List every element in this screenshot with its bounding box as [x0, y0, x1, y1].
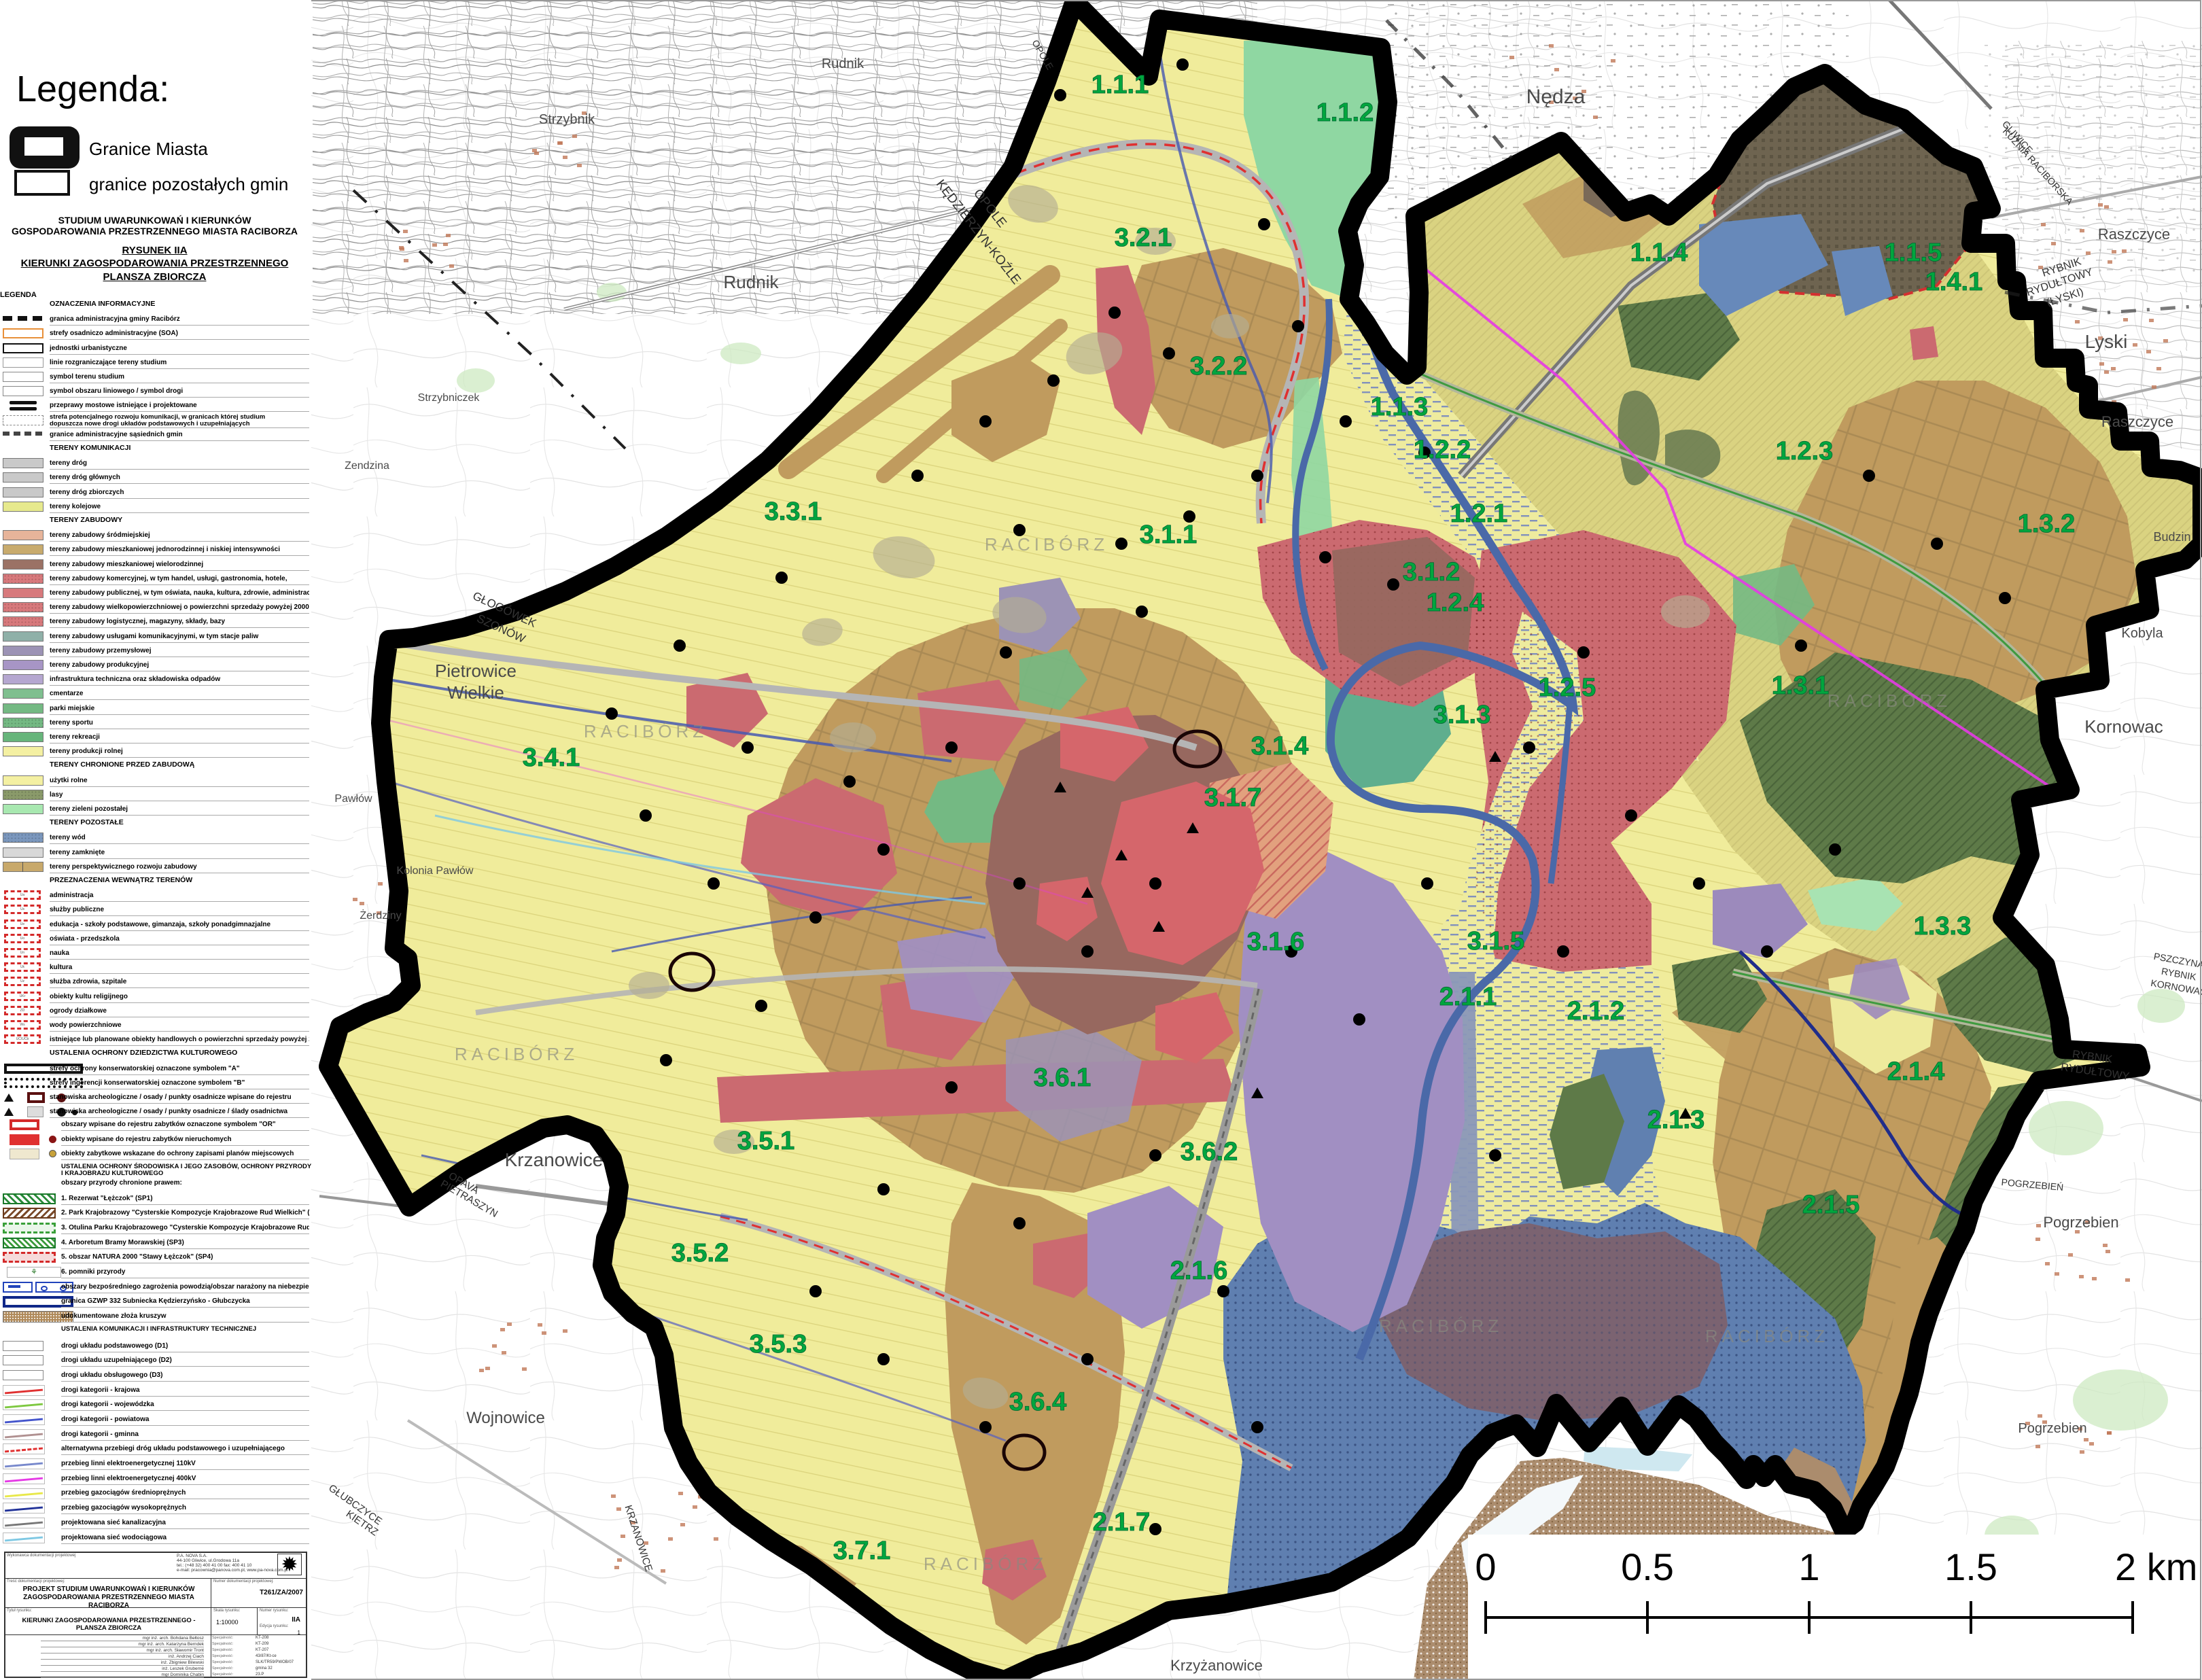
svg-text:3.1.3: 3.1.3 [1433, 701, 1491, 729]
svg-text:Kobyla: Kobyla [2121, 626, 2163, 641]
svg-text:RACIBÓRZ: RACIBÓRZ [924, 1554, 1047, 1574]
svg-text:2 km: 2 km [2115, 1545, 2197, 1588]
svg-text:0.5: 0.5 [1621, 1545, 1674, 1588]
svg-text:Kolonia Pawłów: Kolonia Pawłów [397, 865, 474, 877]
svg-text:RACIBÓRZ: RACIBÓRZ [1379, 1316, 1503, 1336]
svg-text:3.5.2: 3.5.2 [671, 1239, 729, 1267]
svg-text:Krzyżanowice: Krzyżanowice [1170, 1657, 1263, 1674]
svg-text:0: 0 [1475, 1545, 1496, 1588]
svg-text:1.1.3: 1.1.3 [1371, 393, 1429, 421]
svg-text:Pogrzebien: Pogrzebien [2018, 1421, 2086, 1436]
svg-text:1: 1 [1798, 1545, 1819, 1588]
svg-text:Nędza: Nędza [1526, 86, 1586, 108]
svg-text:Wielkie: Wielkie [447, 682, 504, 703]
svg-text:1.1.2: 1.1.2 [1316, 99, 1374, 127]
svg-text:Strzybnik: Strzybnik [539, 112, 595, 127]
svg-text:3.6.4: 3.6.4 [1009, 1388, 1067, 1416]
svg-text:1.3.1: 1.3.1 [1772, 671, 1830, 700]
svg-text:3.1.1: 3.1.1 [1140, 521, 1198, 549]
svg-text:3.1.5: 3.1.5 [1467, 927, 1525, 956]
svg-text:2.1.6: 2.1.6 [1170, 1257, 1228, 1285]
svg-text:2.1.1: 2.1.1 [1439, 983, 1497, 1011]
svg-text:3.1.2: 3.1.2 [1403, 558, 1461, 587]
svg-text:1.3.2: 1.3.2 [2018, 510, 2076, 538]
svg-text:1.2.4: 1.2.4 [1427, 589, 1484, 617]
svg-text:3.1.7: 3.1.7 [1204, 784, 1262, 812]
svg-text:3.3.1: 3.3.1 [765, 497, 822, 526]
svg-text:2.1.5: 2.1.5 [1802, 1191, 1860, 1219]
svg-text:3.1.4: 3.1.4 [1251, 732, 1309, 760]
svg-text:RACIBÓRZ: RACIBÓRZ [584, 721, 707, 741]
svg-text:1.2.3: 1.2.3 [1776, 437, 1834, 466]
svg-text:Zendzina: Zendzina [345, 460, 389, 472]
svg-text:RACIBÓRZ: RACIBÓRZ [1828, 690, 1951, 711]
svg-text:3.7.1: 3.7.1 [833, 1537, 891, 1565]
svg-text:Kornowac: Kornowac [2084, 716, 2163, 737]
svg-text:Strzybniczek: Strzybniczek [418, 392, 480, 404]
svg-text:3.2.2: 3.2.2 [1190, 352, 1248, 381]
svg-text:Raszczyce: Raszczyce [2098, 226, 2170, 243]
svg-text:1.2.5: 1.2.5 [1539, 673, 1596, 702]
svg-text:3.5.1: 3.5.1 [737, 1127, 795, 1155]
svg-text:Budzin: Budzin [2153, 530, 2190, 544]
svg-text:Krzanowice: Krzanowice [505, 1149, 604, 1170]
svg-text:Rudnik: Rudnik [724, 272, 780, 292]
svg-text:1.1.1: 1.1.1 [1091, 71, 1149, 99]
svg-text:Rudnik: Rudnik [822, 56, 864, 71]
svg-text:2.1.4: 2.1.4 [1887, 1057, 1945, 1086]
svg-text:RACIBÓRZ: RACIBÓRZ [455, 1044, 578, 1064]
svg-text:3.2.1: 3.2.1 [1115, 224, 1172, 252]
svg-text:Pawłów: Pawłów [334, 793, 372, 805]
svg-text:Pietrowice: Pietrowice [435, 661, 517, 681]
svg-text:2.1.2: 2.1.2 [1567, 997, 1625, 1026]
svg-text:3.6.1: 3.6.1 [1034, 1064, 1091, 1092]
svg-text:3.5.3: 3.5.3 [750, 1330, 807, 1359]
svg-text:1.4.1: 1.4.1 [1925, 268, 1983, 296]
svg-text:RACIBÓRZ: RACIBÓRZ [985, 534, 1108, 555]
svg-text:3.1.6: 3.1.6 [1247, 928, 1305, 956]
svg-text:Raszczyce: Raszczyce [2101, 413, 2173, 430]
svg-text:1.3.3: 1.3.3 [1914, 912, 1972, 941]
svg-text:1.2.2: 1.2.2 [1414, 436, 1471, 464]
svg-text:1.2.1: 1.2.1 [1450, 500, 1508, 528]
svg-text:2.1.3: 2.1.3 [1647, 1106, 1705, 1134]
svg-text:RACIBÓRZ: RACIBÓRZ [1705, 1326, 1829, 1346]
svg-text:1.1.4: 1.1.4 [1630, 239, 1688, 267]
svg-text:1.5: 1.5 [1944, 1545, 1997, 1588]
svg-text:1.1.5: 1.1.5 [1885, 239, 1942, 267]
svg-text:Pogrzebien: Pogrzebien [2043, 1214, 2118, 1231]
svg-text:2.1.7: 2.1.7 [1093, 1508, 1151, 1537]
svg-text:Żerdziny: Żerdziny [360, 909, 401, 922]
svg-text:3.6.2: 3.6.2 [1181, 1138, 1238, 1166]
svg-text:Lyski: Lyski [2085, 331, 2128, 352]
svg-text:3.4.1: 3.4.1 [523, 743, 580, 772]
svg-text:Wojnowice: Wojnowice [466, 1409, 545, 1427]
